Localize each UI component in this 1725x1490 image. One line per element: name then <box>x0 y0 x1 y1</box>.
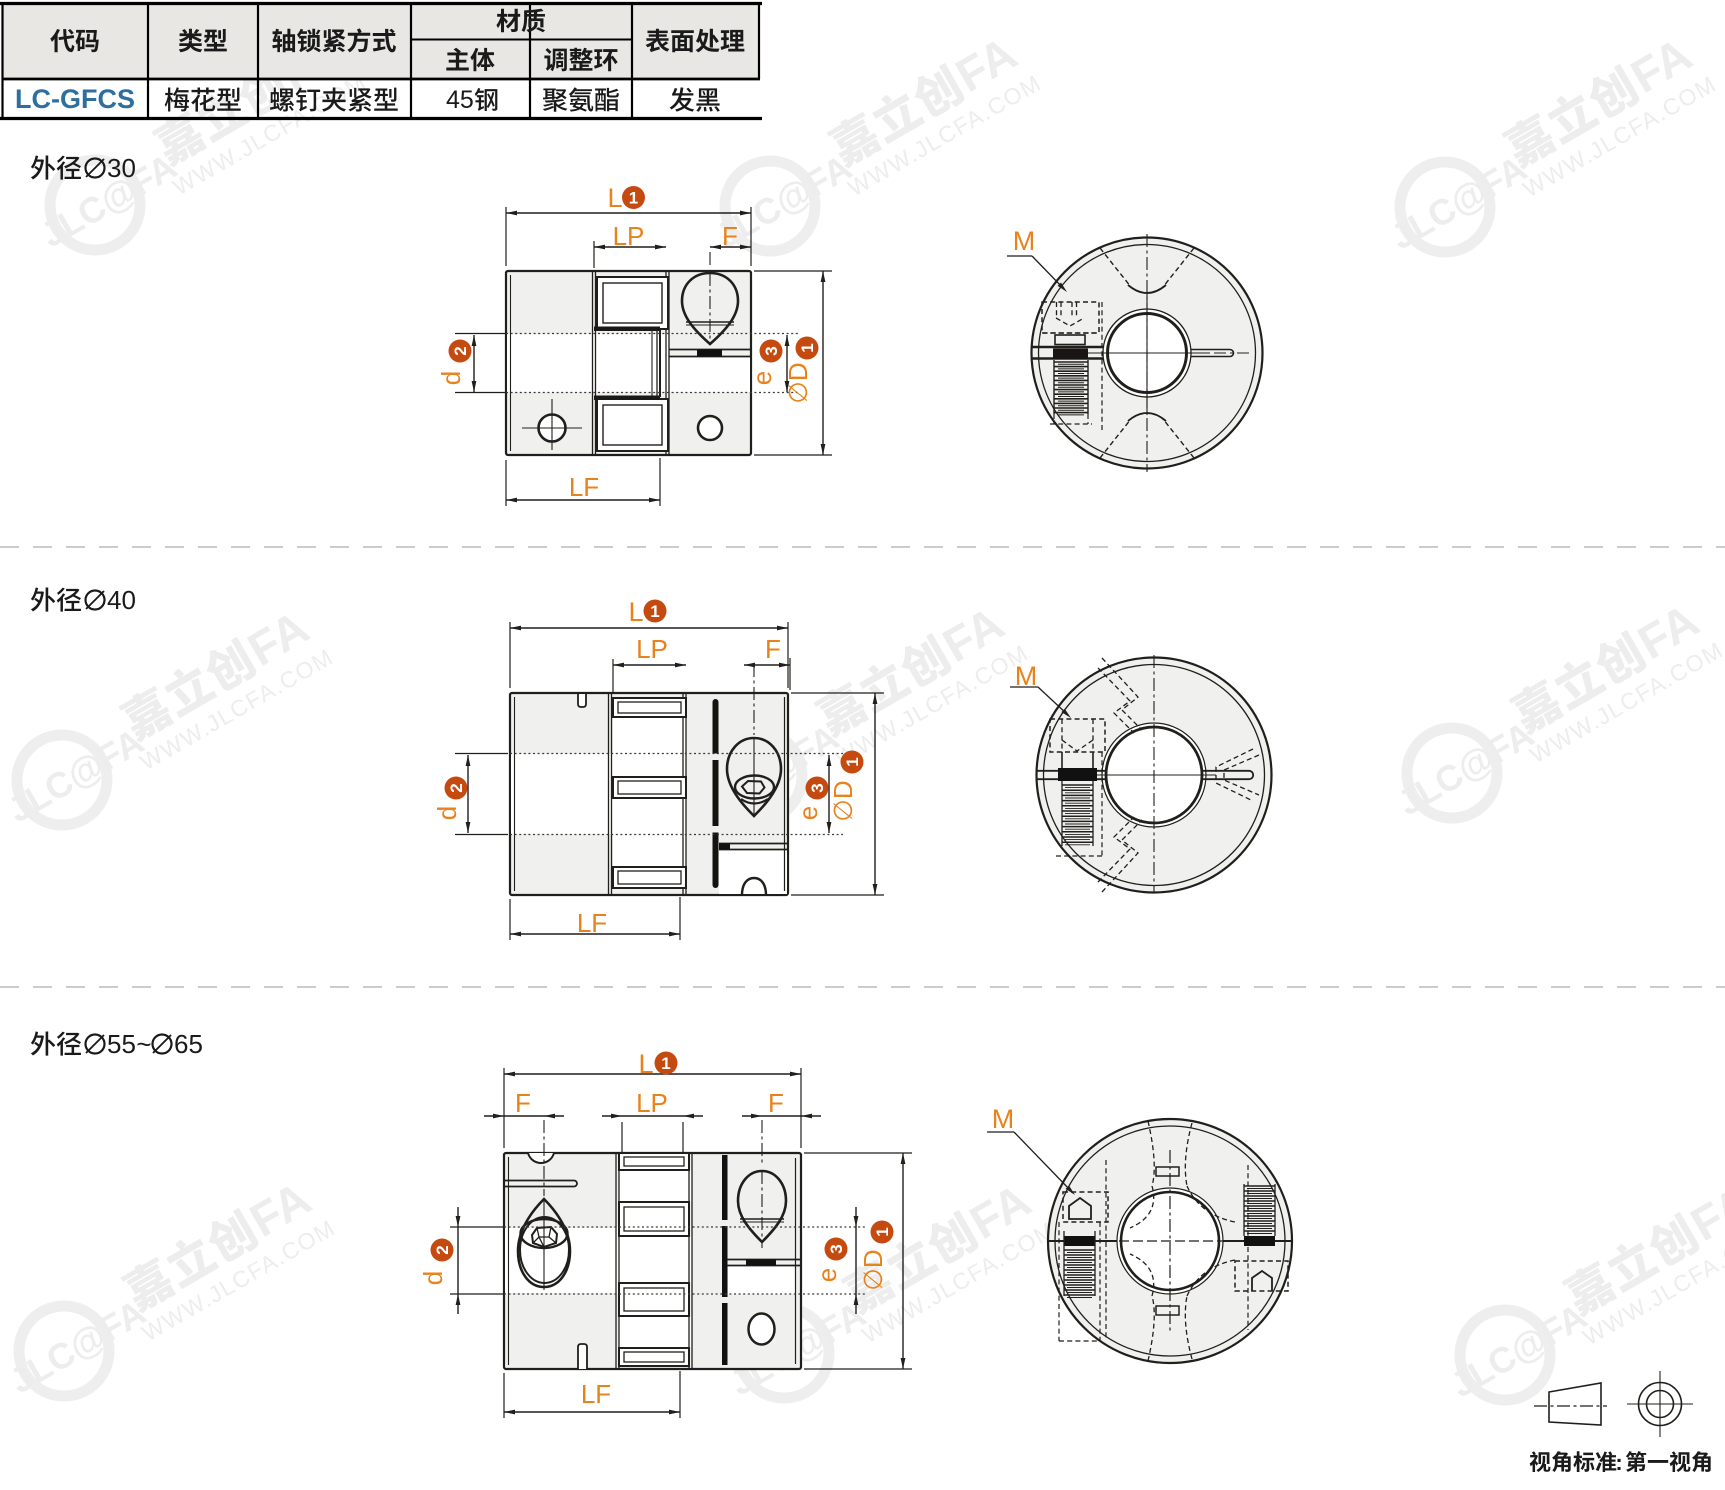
svg-text:e: e <box>793 806 823 820</box>
svg-text:d: d <box>436 371 466 385</box>
svg-text:3: 3 <box>827 1244 846 1253</box>
svg-text:LF: LF <box>569 472 599 502</box>
svg-text:L: L <box>607 183 622 213</box>
svg-text:e: e <box>812 1268 842 1282</box>
svg-text:3: 3 <box>808 783 827 792</box>
svg-text:e: e <box>747 371 777 385</box>
svg-text:1: 1 <box>650 602 659 621</box>
svg-text:65: 65 <box>174 1029 203 1059</box>
svg-text:LC-GFCS: LC-GFCS <box>15 84 135 114</box>
svg-text:1: 1 <box>798 343 817 352</box>
svg-text:F: F <box>768 1088 784 1118</box>
svg-text:LP: LP <box>636 634 668 664</box>
svg-text:40: 40 <box>107 585 136 615</box>
svg-text:d: d <box>432 806 462 820</box>
svg-text:M: M <box>992 1104 1015 1134</box>
svg-text:LP: LP <box>636 1088 668 1118</box>
svg-text:2: 2 <box>451 346 470 355</box>
svg-text:d: d <box>418 1271 448 1285</box>
svg-text:∅D: ∅D <box>858 1249 888 1290</box>
svg-text:1: 1 <box>843 757 862 766</box>
svg-text:∅D: ∅D <box>828 780 858 821</box>
svg-text:2: 2 <box>447 783 466 792</box>
svg-text:55: 55 <box>107 1029 136 1059</box>
svg-text:LF: LF <box>577 908 607 938</box>
svg-text:LP: LP <box>613 221 645 251</box>
svg-text:~: ~ <box>136 1029 151 1059</box>
svg-text:∅D: ∅D <box>783 362 813 403</box>
svg-text:F: F <box>515 1088 531 1118</box>
svg-text:45: 45 <box>446 86 474 114</box>
svg-text:L: L <box>638 1049 653 1079</box>
svg-text:3: 3 <box>762 346 781 355</box>
svg-text:F: F <box>765 634 781 664</box>
svg-text:2: 2 <box>433 1245 452 1254</box>
svg-text:1: 1 <box>629 189 638 208</box>
svg-text:F: F <box>722 221 738 251</box>
svg-text::: : <box>1615 1450 1622 1475</box>
svg-text:L: L <box>628 597 643 627</box>
svg-text:M: M <box>1013 226 1036 256</box>
svg-text:30: 30 <box>107 153 136 183</box>
svg-text:1: 1 <box>873 1227 892 1236</box>
svg-text:LF: LF <box>581 1379 611 1409</box>
svg-text:1: 1 <box>661 1054 670 1073</box>
